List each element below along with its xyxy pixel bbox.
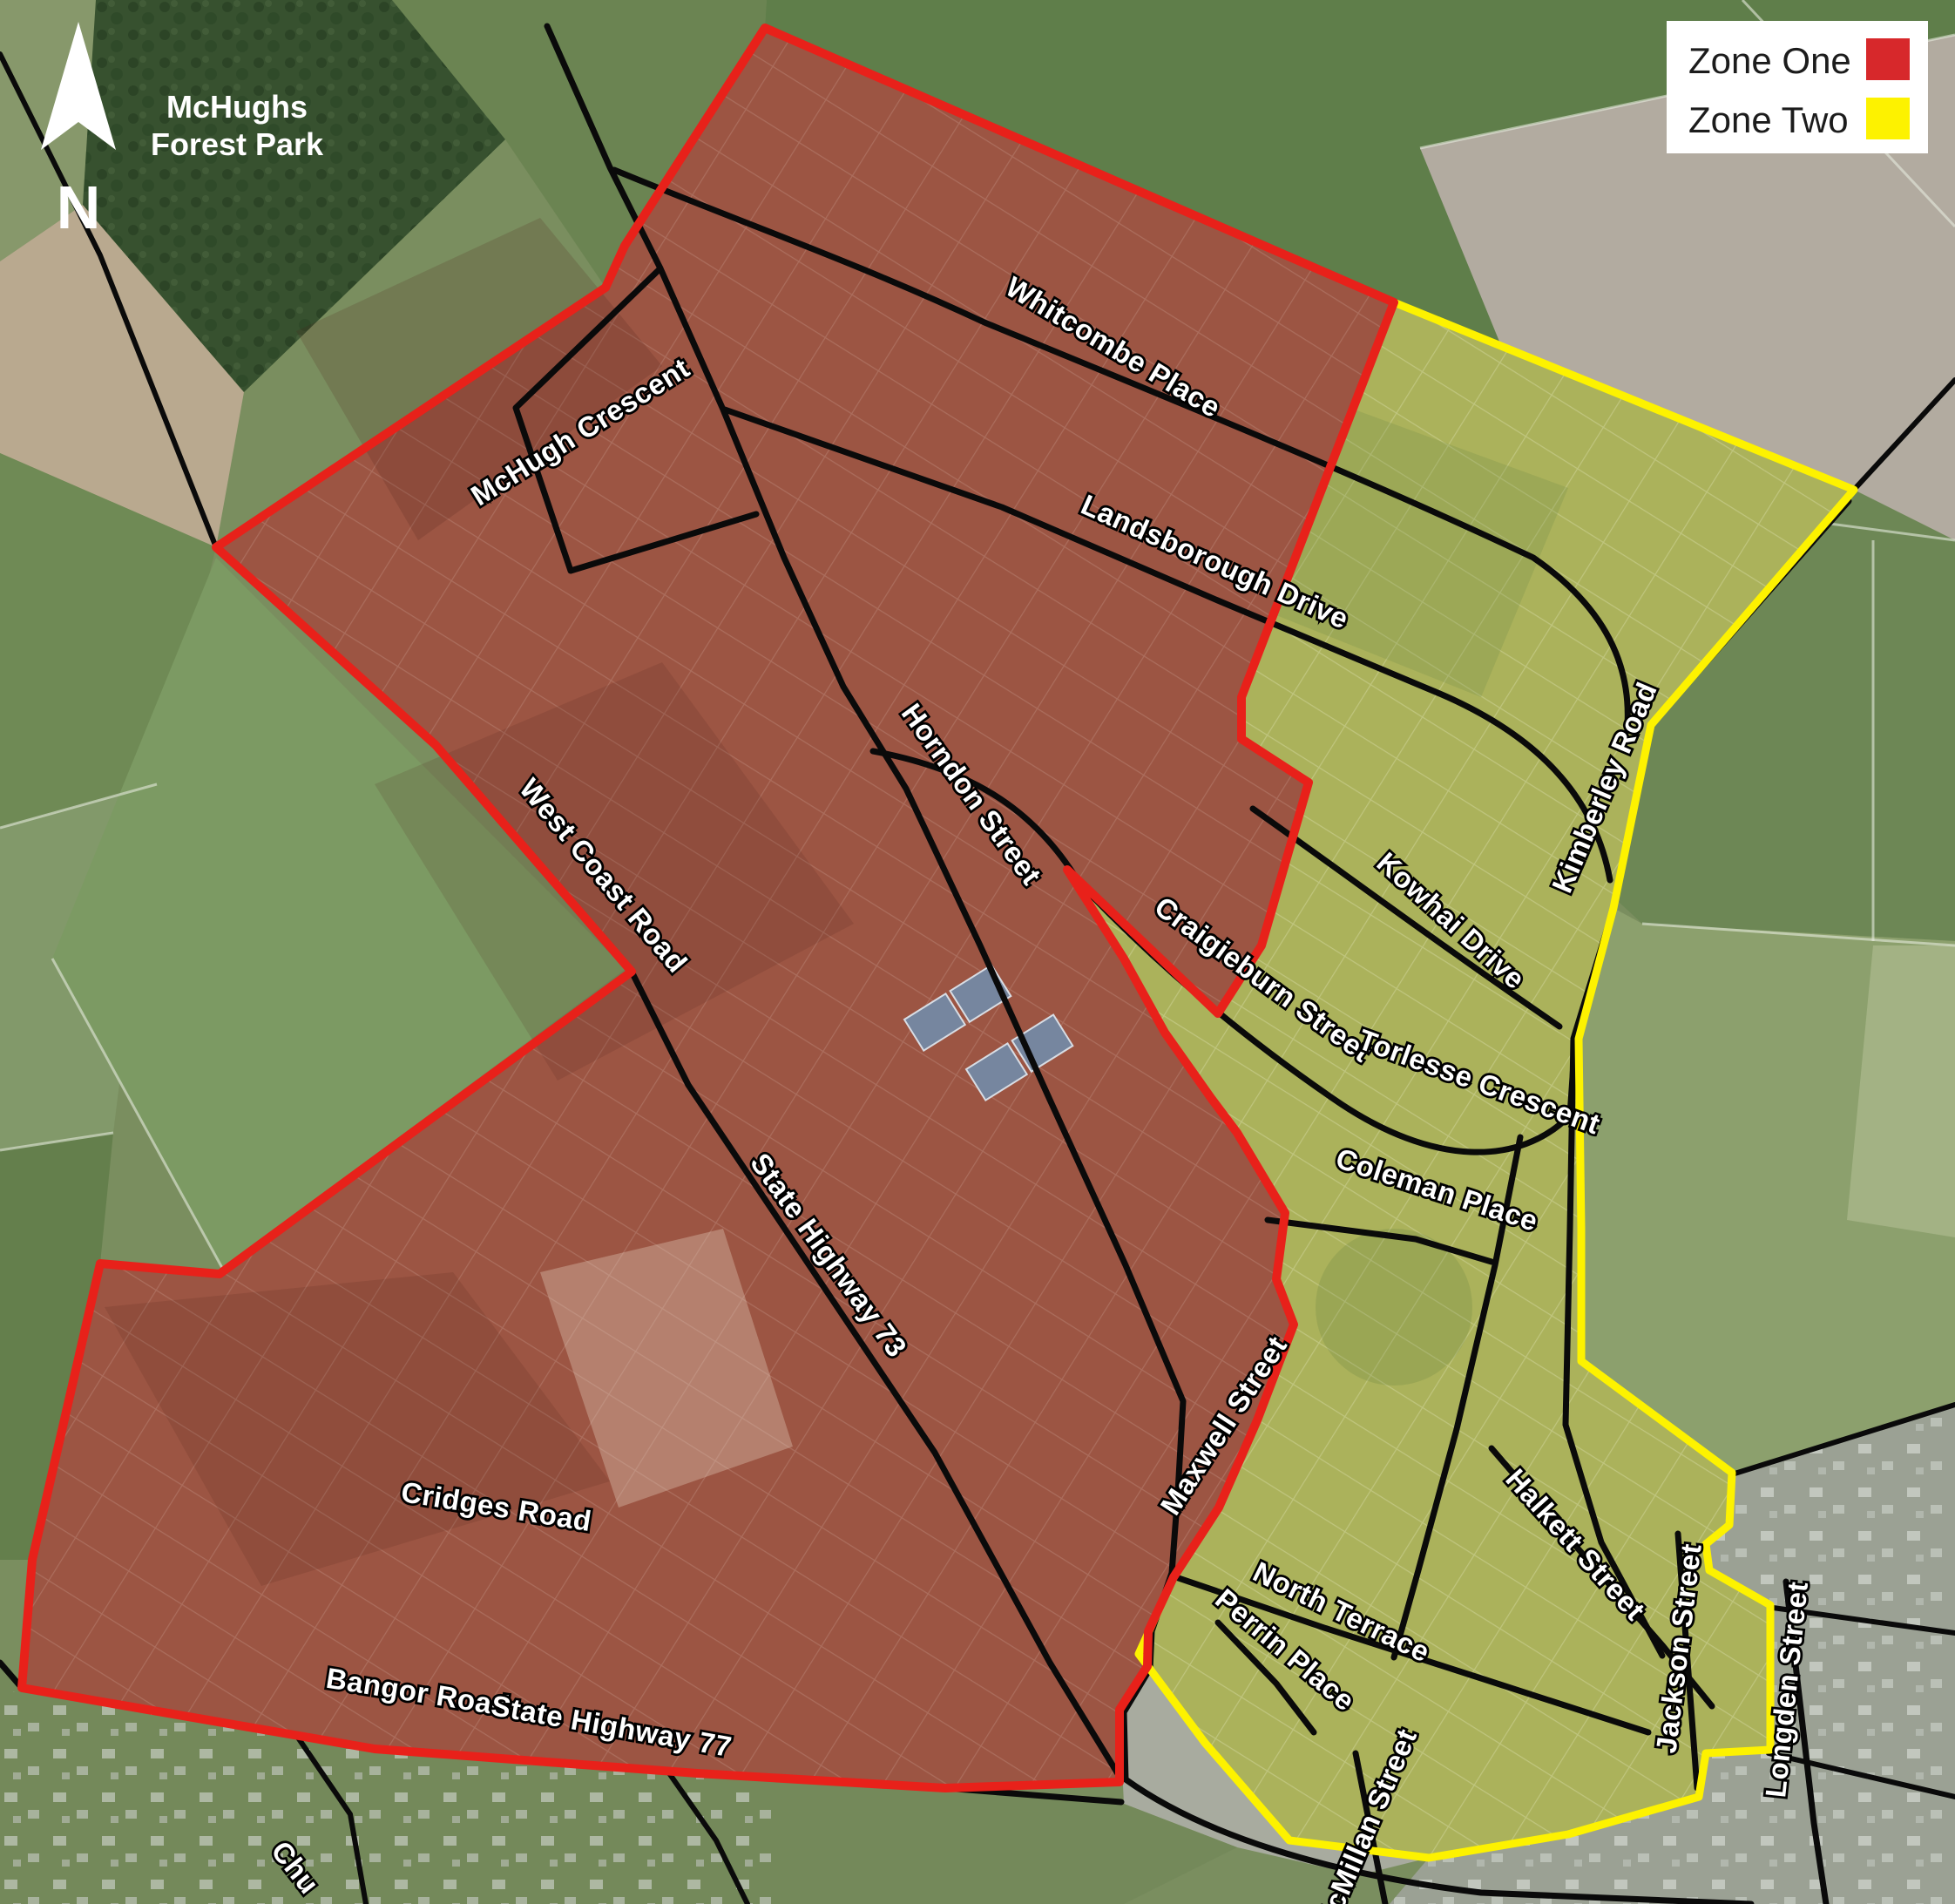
legend-zone-one-label: Zone One [1688,40,1851,81]
legend-zone-two-swatch [1866,98,1910,139]
zoning-map: Whitcombe Place Landsborough Drive McHug… [0,0,1955,1904]
forest-park-label-line2: Forest Park [151,126,324,162]
forest-park-label-line1: McHughs [166,89,308,125]
map-canvas: Whitcombe Place Landsborough Drive McHug… [0,0,1955,1904]
north-arrow-n: N [57,173,101,241]
legend: Zone One Zone Two [1667,21,1928,153]
legend-zone-two-label: Zone Two [1688,99,1849,140]
legend-zone-one-swatch [1866,38,1910,80]
